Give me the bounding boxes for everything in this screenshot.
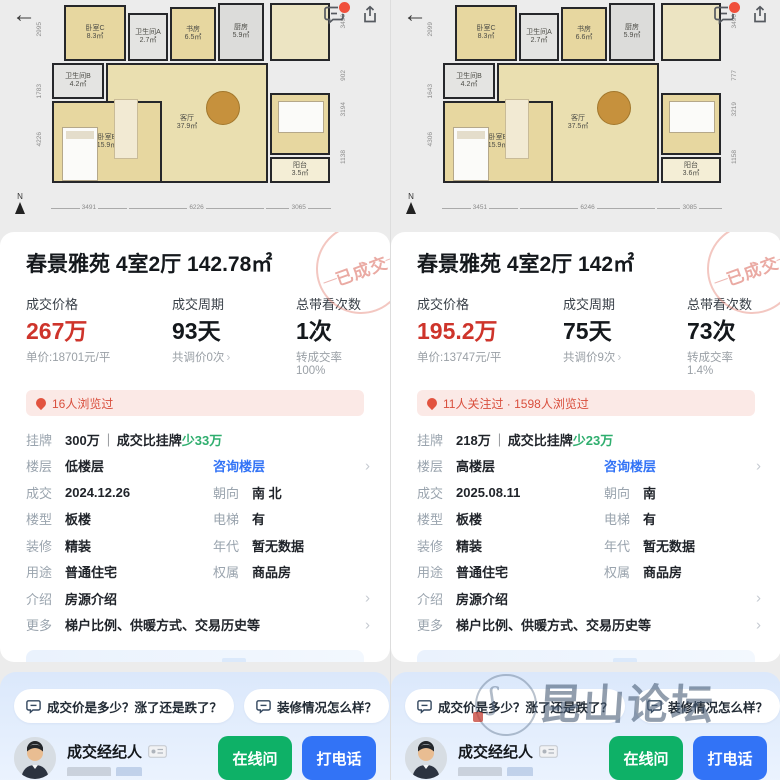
room-name: 客厅 [180, 115, 194, 123]
stat-value: 1次 [296, 318, 364, 344]
detail-value: 南 北 [252, 483, 282, 502]
sofa-furniture [114, 99, 138, 159]
dimension-label: 3491 [50, 204, 128, 211]
detail-cell: 朝向南 北 [213, 483, 282, 502]
detail-value: 普通住宅 [65, 562, 117, 581]
dimension-label: 6226 [128, 204, 266, 211]
sell-promo-text: 在线发布房源 享专业委托服务 [40, 661, 213, 663]
stat-deal-price: 成交价格 267万 单价:18701元/平 [26, 294, 172, 377]
call-phone-button[interactable]: 打电话 [693, 736, 767, 780]
detail-label: 挂牌 [26, 430, 52, 449]
room-area: 3.6㎡ [683, 170, 700, 178]
listing-card: 已成交 春景雅苑 4室2厅 142㎡ 成交价格 195.2万 单价:13747元… [391, 232, 780, 662]
detail-label: 装修 [26, 536, 52, 555]
detail-row: 楼层低楼层咨询楼层› [26, 453, 364, 480]
dimension-label: 902 [340, 70, 347, 81]
dining-table-furniture [206, 91, 240, 125]
chevron-right-icon: › [365, 616, 370, 633]
hot-views-banner: 11人关注过 · 1598人浏览过 [417, 390, 755, 416]
call-phone-button[interactable]: 打电话 [302, 736, 376, 780]
stats-row: 成交价格 267万 单价:18701元/平 成交周期 93天 共调价0次› 总带… [26, 294, 364, 377]
stat-value: 73次 [687, 318, 755, 344]
question-chip-renovation[interactable]: 装修情况怎么样？ [244, 689, 389, 723]
question-chip-price[interactable]: 成交价是多少？涨了还是跌了？ [14, 689, 234, 723]
compass-north-icon: N [12, 193, 28, 214]
detail-value: 南 [643, 483, 656, 502]
room-name: 阳台 [684, 162, 698, 170]
detail-cell: 权属商品房 [604, 562, 682, 581]
room-area: 37.5㎡ [568, 123, 589, 131]
detail-value: 有 [643, 509, 656, 528]
ask-online-button[interactable]: 在线问 [218, 736, 292, 780]
detail-value: 2025.08.11 [456, 485, 520, 500]
bed-furniture [669, 101, 715, 133]
consult-card: 成交价是多少？涨了还是跌了？ 装修情况怎么样？ [0, 672, 390, 780]
listing-card: 已成交 春景雅苑 4室2厅 142.78㎡ 成交价格 267万 单价:18701… [0, 232, 390, 662]
app-root: ← 卧室C8.3㎡卫生间A2.7㎡书房6.5㎡厨房5.9㎡卫生间B4.2㎡卧室B… [0, 0, 780, 780]
detail-label: 电梯 [604, 509, 630, 528]
detail-label: 挂牌 [417, 430, 443, 449]
detail-value: 板楼 [65, 509, 91, 528]
detail-label: 楼型 [417, 509, 443, 528]
detail-value: 精装 [65, 536, 91, 555]
sell-promo-banner[interactable]: 在线发布房源 享专业委托服务 我要卖房› [26, 650, 364, 662]
detail-cell: 权属商品房 [213, 562, 291, 581]
detail-list: 挂牌218万｜成交比挂牌少23万楼层高楼层咨询楼层›成交2025.08.11朝向… [417, 426, 755, 638]
floor-plan: 卧室C8.3㎡卫生间A2.7㎡书房6.6㎡厨房5.9㎡卫生间B4.2㎡卧室B15… [441, 3, 723, 187]
stat-value: 195.2万 [417, 318, 563, 344]
detail-separator: ｜ [493, 430, 506, 449]
detail-value: 精装 [456, 536, 482, 555]
chevron-right-icon: › [226, 350, 230, 364]
detail-row: 成交2025.08.11朝向南 [417, 479, 755, 506]
detail-label: 楼层 [26, 456, 52, 475]
detail-value: 2024.12.26 [65, 485, 130, 500]
stat-sub: 转成交率1.4% [687, 349, 755, 377]
bed-furniture [278, 101, 324, 133]
detail-cell: 挂牌218万｜成交比挂牌少23万 [417, 430, 755, 449]
listing-title: 春景雅苑 4室2厅 142.78㎡ [26, 252, 364, 278]
listing-title: 春景雅苑 4室2厅 142㎡ [417, 252, 755, 278]
stat-label: 成交价格 [417, 294, 563, 313]
detail-value: 普通住宅 [456, 562, 508, 581]
detail-label: 权属 [213, 562, 239, 581]
detail-row: 挂牌218万｜成交比挂牌少23万 [417, 426, 755, 453]
chat-bubble-icon [647, 699, 662, 714]
detail-label: 权属 [604, 562, 630, 581]
detail-cell: 楼层低楼层 [26, 456, 213, 475]
top-bar: ← [0, 0, 390, 30]
detail-label: 介绍 [417, 589, 443, 608]
detail-value: 暂无数据 [252, 536, 304, 555]
detail-row: 成交2024.12.26朝向南 北 [26, 479, 364, 506]
dimension-label: 6246 [519, 204, 657, 211]
share-icon[interactable] [750, 5, 770, 25]
room-area: 8.3㎡ [478, 33, 495, 41]
agent-name-clipped [458, 767, 558, 776]
detail-row: 装修精装年代暂无数据 [26, 532, 364, 559]
room-area: 2.7㎡ [140, 37, 157, 45]
detail-value: 低楼层 [65, 456, 104, 475]
top-bar: ← [391, 0, 780, 30]
stat-label: 成交价格 [26, 294, 172, 313]
room-area: 6.5㎡ [185, 34, 202, 42]
room-area: 3.5㎡ [292, 170, 309, 178]
detail-cell: 咨询楼层 [604, 456, 656, 475]
detail-label: 更多 [417, 615, 443, 634]
question-chip-price[interactable]: 成交价是多少？涨了还是跌了？ [405, 689, 625, 723]
stat-deal-cycle: 成交周期 93天 共调价0次› [172, 294, 296, 377]
chevron-right-icon: › [617, 350, 621, 364]
plan-dimensions-bottom: 349162263065 [50, 204, 332, 211]
notification-badge [728, 1, 741, 14]
question-chips: 成交价是多少？涨了还是跌了？ 装修情况怎么样？ [405, 689, 767, 723]
price-diff-badge: 少33万 [182, 430, 222, 449]
floor-plan: 卧室C8.3㎡卫生间A2.7㎡书房6.5㎡厨房5.9㎡卫生间B4.2㎡卧室B15… [50, 3, 332, 187]
detail-label: 朝向 [213, 483, 239, 502]
stat-label: 成交周期 [172, 294, 296, 313]
notification-badge [338, 1, 351, 14]
detail-value: 暂无数据 [643, 536, 695, 555]
detail-value: 房源介绍 [65, 589, 117, 608]
room-area: 5.9㎡ [624, 32, 641, 40]
share-icon[interactable] [360, 5, 380, 25]
dimension-value: 6226 [187, 204, 205, 211]
stat-sub: 转成交率100% [296, 349, 364, 377]
sell-promo-banner[interactable]: 在线发布房源 享专业委托服务 我要卖房› [417, 650, 755, 662]
dimension-label: 4226 [36, 132, 43, 146]
detail-cell: 装修精装 [26, 536, 213, 555]
consult-card: 成交价是多少？涨了还是跌了？ 装修情况怎么样？ [391, 672, 780, 780]
detail-label: 更多 [26, 615, 52, 634]
detail-value: 商品房 [252, 562, 291, 581]
detail-cell: 用途普通住宅 [417, 562, 604, 581]
detail-value: 高楼层 [456, 456, 495, 475]
id-card-badge-icon [539, 745, 558, 758]
back-arrow-icon[interactable]: ← [12, 2, 36, 28]
detail-label: 电梯 [213, 509, 239, 528]
chevron-right-icon: › [756, 616, 761, 633]
dimension-label: 3085 [656, 204, 723, 211]
agent-name-clipped [67, 767, 167, 776]
detail-label: 年代 [604, 536, 630, 555]
detail-cell: 用途普通住宅 [26, 562, 213, 581]
flame-icon [36, 397, 46, 409]
detail-cell: 咨询楼层 [213, 456, 265, 475]
room-area: 8.3㎡ [87, 33, 104, 41]
room-area: 4.2㎡ [70, 81, 87, 89]
room-area: 2.7㎡ [531, 37, 548, 45]
detail-separator: ｜ [102, 430, 115, 449]
detail-cell: 挂牌300万｜成交比挂牌少33万 [26, 430, 364, 449]
chat-bubble-icon [256, 699, 271, 714]
room: 卫生间B4.2㎡ [52, 63, 104, 99]
detail-label: 楼型 [26, 509, 52, 528]
dimension-label: 3065 [265, 204, 332, 211]
detail-label: 年代 [213, 536, 239, 555]
dimension-label: 3219 [731, 102, 738, 116]
stat-deal-price: 成交价格 195.2万 单价:13747元/平 [417, 294, 563, 377]
detail-value: 218万 [456, 430, 491, 449]
ask-online-button[interactable]: 在线问 [609, 736, 683, 780]
dimension-label: 4306 [427, 132, 434, 146]
detail-value: 梯户比例、供暖方式、交易历史等 [456, 615, 651, 634]
agent-meta: 成交经纪人 [458, 741, 558, 776]
room-area: 6.6㎡ [576, 34, 593, 42]
dimension-label: 1158 [731, 150, 738, 164]
detail-cell: 楼型板楼 [417, 509, 604, 528]
chevron-right-icon: › [756, 590, 761, 607]
stat-label: 成交周期 [563, 294, 687, 313]
dimension-value: 6246 [578, 204, 596, 211]
compass-north-icon: N [403, 193, 419, 214]
detail-row: 楼型板楼电梯有 [417, 506, 755, 533]
agent-role-title: 成交经纪人 [67, 741, 142, 762]
stats-row: 成交价格 195.2万 单价:13747元/平 成交周期 75天 共调价9次› … [417, 294, 755, 377]
room-name: 卫生间A [526, 29, 552, 37]
detail-cell: 电梯有 [213, 509, 265, 528]
detail-label: 用途 [26, 562, 52, 581]
detail-row: 楼型板楼电梯有 [26, 506, 364, 533]
question-chips: 成交价是多少？涨了还是跌了？ 装修情况怎么样？ [14, 689, 376, 723]
bed-furniture [453, 127, 489, 181]
detail-value: 房源介绍 [456, 589, 508, 608]
stat-sub: 单价:18701元/平 [26, 349, 172, 365]
detail-value: 有 [252, 509, 265, 528]
messages-icon[interactable] [714, 5, 736, 25]
chat-bubble-icon [417, 699, 432, 714]
stat-value: 93天 [172, 318, 296, 344]
detail-cell: 楼型板楼 [26, 509, 213, 528]
detail-label: 介绍 [26, 589, 52, 608]
room-area: 4.2㎡ [461, 81, 478, 89]
detail-label: 楼层 [417, 456, 443, 475]
dimension-label: 777 [731, 70, 738, 81]
detail-label: 朝向 [604, 483, 630, 502]
room-name: 卫生间B [65, 73, 91, 81]
plan-dimensions-bottom: 345162463085 [441, 204, 723, 211]
listing-panel: ← 卧室C8.3㎡卫生间A2.7㎡书房6.5㎡厨房5.9㎡卫生间B4.2㎡卧室B… [0, 0, 390, 780]
detail-cell: 更多梯户比例、供暖方式、交易历史等 [417, 615, 755, 634]
detail-value: 板楼 [456, 509, 482, 528]
detail-list: 挂牌300万｜成交比挂牌少33万楼层低楼层咨询楼层›成交2024.12.26朝向… [26, 426, 364, 638]
detail-cell: 成交2024.12.26 [26, 483, 213, 502]
agent-avatar[interactable] [405, 737, 447, 779]
stat-sub[interactable]: 共调价0次› [172, 349, 296, 365]
dimension-label: 3194 [340, 102, 347, 116]
detail-cell: 电梯有 [604, 509, 656, 528]
stat-sub[interactable]: 共调价9次› [563, 349, 687, 365]
agent-row: 成交经纪人 在线问 打电话 [14, 736, 376, 780]
room-name: 卫生间B [456, 73, 482, 81]
room: 卫生间B4.2㎡ [443, 63, 495, 99]
detail-row: 楼层高楼层咨询楼层› [417, 453, 755, 480]
dimension-label: 3451 [441, 204, 519, 211]
detail-row: 用途普通住宅权属商品房 [417, 559, 755, 586]
room-name: 卫生间A [135, 29, 161, 37]
stat-sub: 单价:13747元/平 [417, 349, 563, 365]
detail-label: 用途 [417, 562, 443, 581]
detail-cell: 更多梯户比例、供暖方式、交易历史等 [26, 615, 364, 634]
dimension-label: 1783 [36, 84, 43, 98]
question-chip-renovation[interactable]: 装修情况怎么样？ [635, 689, 780, 723]
back-arrow-icon[interactable]: ← [403, 2, 427, 28]
dimension-label: 1643 [427, 84, 434, 98]
sell-house-link[interactable]: 我要卖房› [292, 661, 350, 663]
detail-value: 梯户比例、供暖方式、交易历史等 [65, 615, 260, 634]
room: 阳台3.5㎡ [270, 157, 330, 183]
detail-cell: 成交2025.08.11 [417, 483, 604, 502]
chevron-right-icon: › [756, 457, 761, 474]
floor-consult-link[interactable]: 咨询楼层 [213, 456, 265, 475]
flame-icon [427, 397, 437, 409]
detail-cell: 年代暂无数据 [604, 536, 695, 555]
dimension-value: 3065 [289, 204, 307, 211]
sofa-furniture [505, 99, 529, 159]
stat-deal-cycle: 成交周期 75天 共调价9次› [563, 294, 687, 377]
room-name: 阳台 [293, 162, 307, 170]
room-area: 5.9㎡ [233, 32, 250, 40]
detail-cell: 年代暂无数据 [213, 536, 304, 555]
detail-label: 成交 [26, 483, 52, 502]
stat-value: 75天 [563, 318, 687, 344]
agent-role-title: 成交经纪人 [458, 741, 533, 762]
detail-cell: 朝向南 [604, 483, 656, 502]
detail-cell: 介绍房源介绍 [26, 589, 364, 608]
chevron-right-icon: › [365, 457, 370, 474]
chevron-right-icon: › [365, 590, 370, 607]
room-name: 客厅 [571, 115, 585, 123]
stat-value: 267万 [26, 318, 172, 344]
dimension-value: 3085 [680, 204, 698, 211]
detail-row: 更多梯户比例、供暖方式、交易历史等› [26, 612, 364, 639]
detail-value: 商品房 [643, 562, 682, 581]
price-diff-badge: 少23万 [573, 430, 613, 449]
detail-row: 用途普通住宅权属商品房 [26, 559, 364, 586]
dimension-value: 3451 [471, 204, 489, 211]
dimension-value: 3491 [80, 204, 98, 211]
detail-row: 更多梯户比例、供暖方式、交易历史等› [417, 612, 755, 639]
room: 阳台3.6㎡ [661, 157, 721, 183]
dining-table-furniture [597, 91, 631, 125]
detail-cell: 介绍房源介绍 [417, 589, 755, 608]
listing-panel: ← 卧室C8.3㎡卫生间A2.7㎡书房6.6㎡厨房5.9㎡卫生间B4.2㎡卧室B… [390, 0, 780, 780]
sell-house-link[interactable]: 我要卖房› [683, 661, 741, 663]
messages-icon[interactable] [324, 5, 346, 25]
detail-value: 300万 [65, 430, 100, 449]
detail-row: 介绍房源介绍› [26, 585, 364, 612]
detail-label: 装修 [417, 536, 443, 555]
detail-label: 成交 [417, 483, 443, 502]
agent-meta: 成交经纪人 [67, 741, 167, 776]
id-card-badge-icon [148, 745, 167, 758]
detail-row: 装修精装年代暂无数据 [417, 532, 755, 559]
agent-avatar[interactable] [14, 737, 56, 779]
agent-row: 成交经纪人 在线问 打电话 [405, 736, 767, 780]
detail-cell: 装修精装 [417, 536, 604, 555]
bed-furniture [62, 127, 98, 181]
chat-bubble-icon [26, 699, 41, 714]
detail-cell: 楼层高楼层 [417, 456, 604, 475]
detail-compare: 成交比挂牌 [117, 430, 182, 449]
detail-compare: 成交比挂牌 [508, 430, 573, 449]
room-area: 37.9㎡ [177, 123, 198, 131]
floor-consult-link[interactable]: 咨询楼层 [604, 456, 656, 475]
hot-views-banner: 16人浏览过 [26, 390, 364, 416]
detail-row: 介绍房源介绍› [417, 585, 755, 612]
dimension-label: 1138 [340, 150, 347, 164]
detail-row: 挂牌300万｜成交比挂牌少33万 [26, 426, 364, 453]
sell-promo-text: 在线发布房源 享专业委托服务 [431, 661, 604, 663]
